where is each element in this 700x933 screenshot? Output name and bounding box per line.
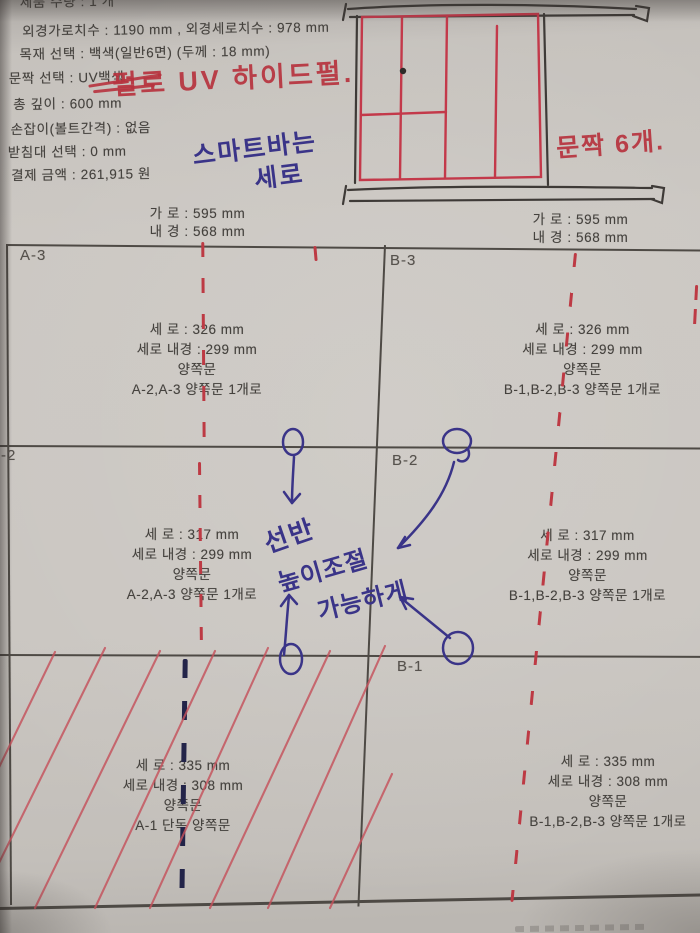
blue-smartbar-note-line2: 세로	[252, 154, 306, 196]
sketch-red-doors	[360, 14, 541, 180]
b1-doortype: 양쪽문	[468, 792, 700, 812]
a3-doortype: 양쪽문	[57, 360, 337, 380]
sketch-knob-dot	[400, 68, 406, 74]
b1-inner: 세로 내경 : 308 mm	[468, 772, 700, 792]
left-header-width: 가 로 : 595 mm	[105, 205, 290, 223]
sketch-black-frame	[343, 4, 664, 204]
a3-doorgroup: A-2,A-3 양쪽문 1개로	[57, 380, 337, 400]
blue-arrow-curved	[399, 462, 454, 547]
photo-vignette-bottom-right	[440, 813, 700, 933]
a3-height: 세 로 : 326 mm	[57, 320, 337, 340]
spec-block: 제품 수량 : 1 개 외경가로치수 : 1190 mm , 외경세로치수 : …	[0, 0, 382, 200]
blue-arrow-down	[292, 457, 294, 502]
b3-inner: 세로 내경 : 299 mm	[440, 340, 700, 360]
right-header-width: 가 로 : 595 mm	[488, 211, 673, 229]
photographed-order-sheet: 제품 수량 : 1 개 외경가로치수 : 1190 mm , 외경세로치수 : …	[0, 0, 700, 933]
spec-line-base: 받침대 선택 : 0 mm	[8, 140, 127, 162]
cell-a3-text: 세 로 : 326 mm 세로 내경 : 299 mm 양쪽문 A-2,A-3 …	[57, 320, 337, 400]
label-cell-a3: A-3	[20, 247, 46, 264]
spec-line-depth: 총 깊이 : 600 mm	[13, 92, 122, 114]
b3-doortype: 양쪽문	[440, 360, 700, 380]
b3-doorgroup: B-1,B-2,B-3 양쪽문 1개로	[440, 380, 700, 400]
left-header-inner: 내 경 : 568 mm	[105, 223, 290, 241]
spec-line-handle: 손잡이(볼트간격) : 없음	[10, 116, 151, 138]
label-cell-b3: B-3	[390, 252, 416, 269]
photo-vignette-left	[0, 0, 12, 933]
photo-vignette-top	[0, 0, 700, 22]
right-header-inner: 내 경 : 568 mm	[488, 229, 673, 247]
cell-b3-text: 세 로 : 326 mm 세로 내경 : 299 mm 양쪽문 B-1,B-2,…	[440, 320, 700, 400]
blue-circle-top-right	[443, 429, 471, 453]
left-column-header: 가 로 : 595 mm 내 경 : 568 mm	[105, 205, 290, 241]
right-column-header: 가 로 : 595 mm 내 경 : 568 mm	[488, 211, 673, 247]
photo-vignette-bottom-left	[0, 843, 160, 933]
a3-inner: 세로 내경 : 299 mm	[57, 340, 337, 360]
blue-circle-bottom-right	[443, 632, 473, 664]
b1-height: 세 로 : 335 mm	[468, 752, 700, 772]
spec-line-price: 결제 금액 : 261,915 원	[11, 162, 151, 184]
blue-circle-bottom-left	[280, 644, 302, 674]
cabinet-sketch	[330, 0, 700, 212]
blue-circle-top-left	[283, 429, 303, 455]
